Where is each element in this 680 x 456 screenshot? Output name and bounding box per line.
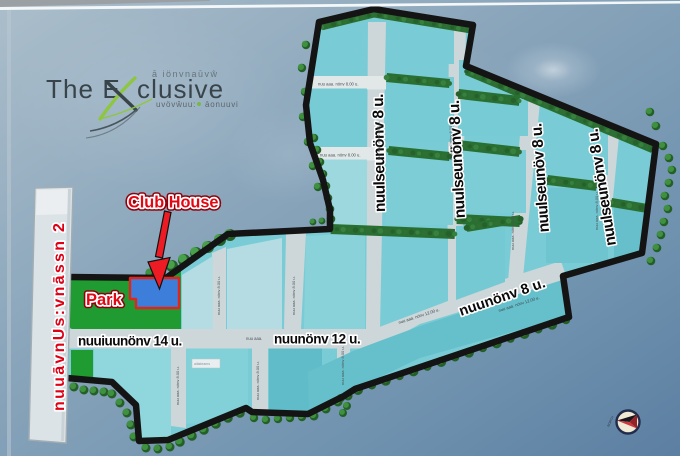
svg-text:uvövŵuu:: uvövŵuu: — [156, 100, 196, 109]
svg-text:nuu aaa. nönv 8.00 u.: nuu aaa. nönv 8.00 u. — [594, 191, 599, 230]
svg-text:āonuuvi: āonuuvi — [205, 100, 239, 109]
svg-text:nuu aaa. nönv 8.00 u.: nuu aaa. nönv 8.00 u. — [376, 121, 381, 160]
svg-text:nuu aaa. nönv 8.00 u.: nuu aaa. nönv 8.00 u. — [318, 82, 359, 87]
svg-text:ā iönvnaūvŵ: ā iönvnaūvŵ — [152, 69, 219, 79]
svg-text:nuuiuunönv 14 u.: nuuiuunönv 14 u. — [78, 334, 182, 349]
svg-text:aiästeams: aiästeams — [194, 362, 210, 366]
svg-text:Club House: Club House — [128, 194, 218, 212]
svg-text:nuu aaa. nönv 8.00 u.: nuu aaa. nönv 8.00 u. — [320, 153, 361, 158]
svg-text:The E: The E — [46, 74, 121, 104]
svg-text:nuu aaa. nönv 8.00 u.: nuu aaa. nönv 8.00 u. — [255, 361, 260, 400]
svg-text:nuunönv 12 u.: nuunönv 12 u. — [274, 332, 360, 347]
svg-text:Park: Park — [86, 291, 123, 309]
svg-text:nuu aaa. nönv 8.00 u.: nuu aaa. nönv 8.00 u. — [175, 366, 180, 405]
svg-text:nuu aaa. nönv 8.00 u.: nuu aaa. nönv 8.00 u. — [510, 211, 515, 250]
svg-text:nuu aaa. nönv 8.00 u.: nuu aaa. nönv 8.00 u. — [448, 121, 453, 160]
svg-text:nuu aaa. nönv 8.00 u.: nuu aaa. nönv 8.00 u. — [340, 346, 345, 385]
svg-text:nuu aaa. nönv 8.00 u.: nuu aaa. nönv 8.00 u. — [291, 276, 296, 315]
svg-text:nuu aaa.: nuu aaa. — [246, 336, 262, 341]
svg-text:nuuāvnUs:vnāssn 2: nuuāvnUs:vnāssn 2 — [51, 221, 68, 411]
svg-text:nuu aaa. nönv 8.00 u.: nuu aaa. nönv 8.00 u. — [216, 276, 221, 315]
